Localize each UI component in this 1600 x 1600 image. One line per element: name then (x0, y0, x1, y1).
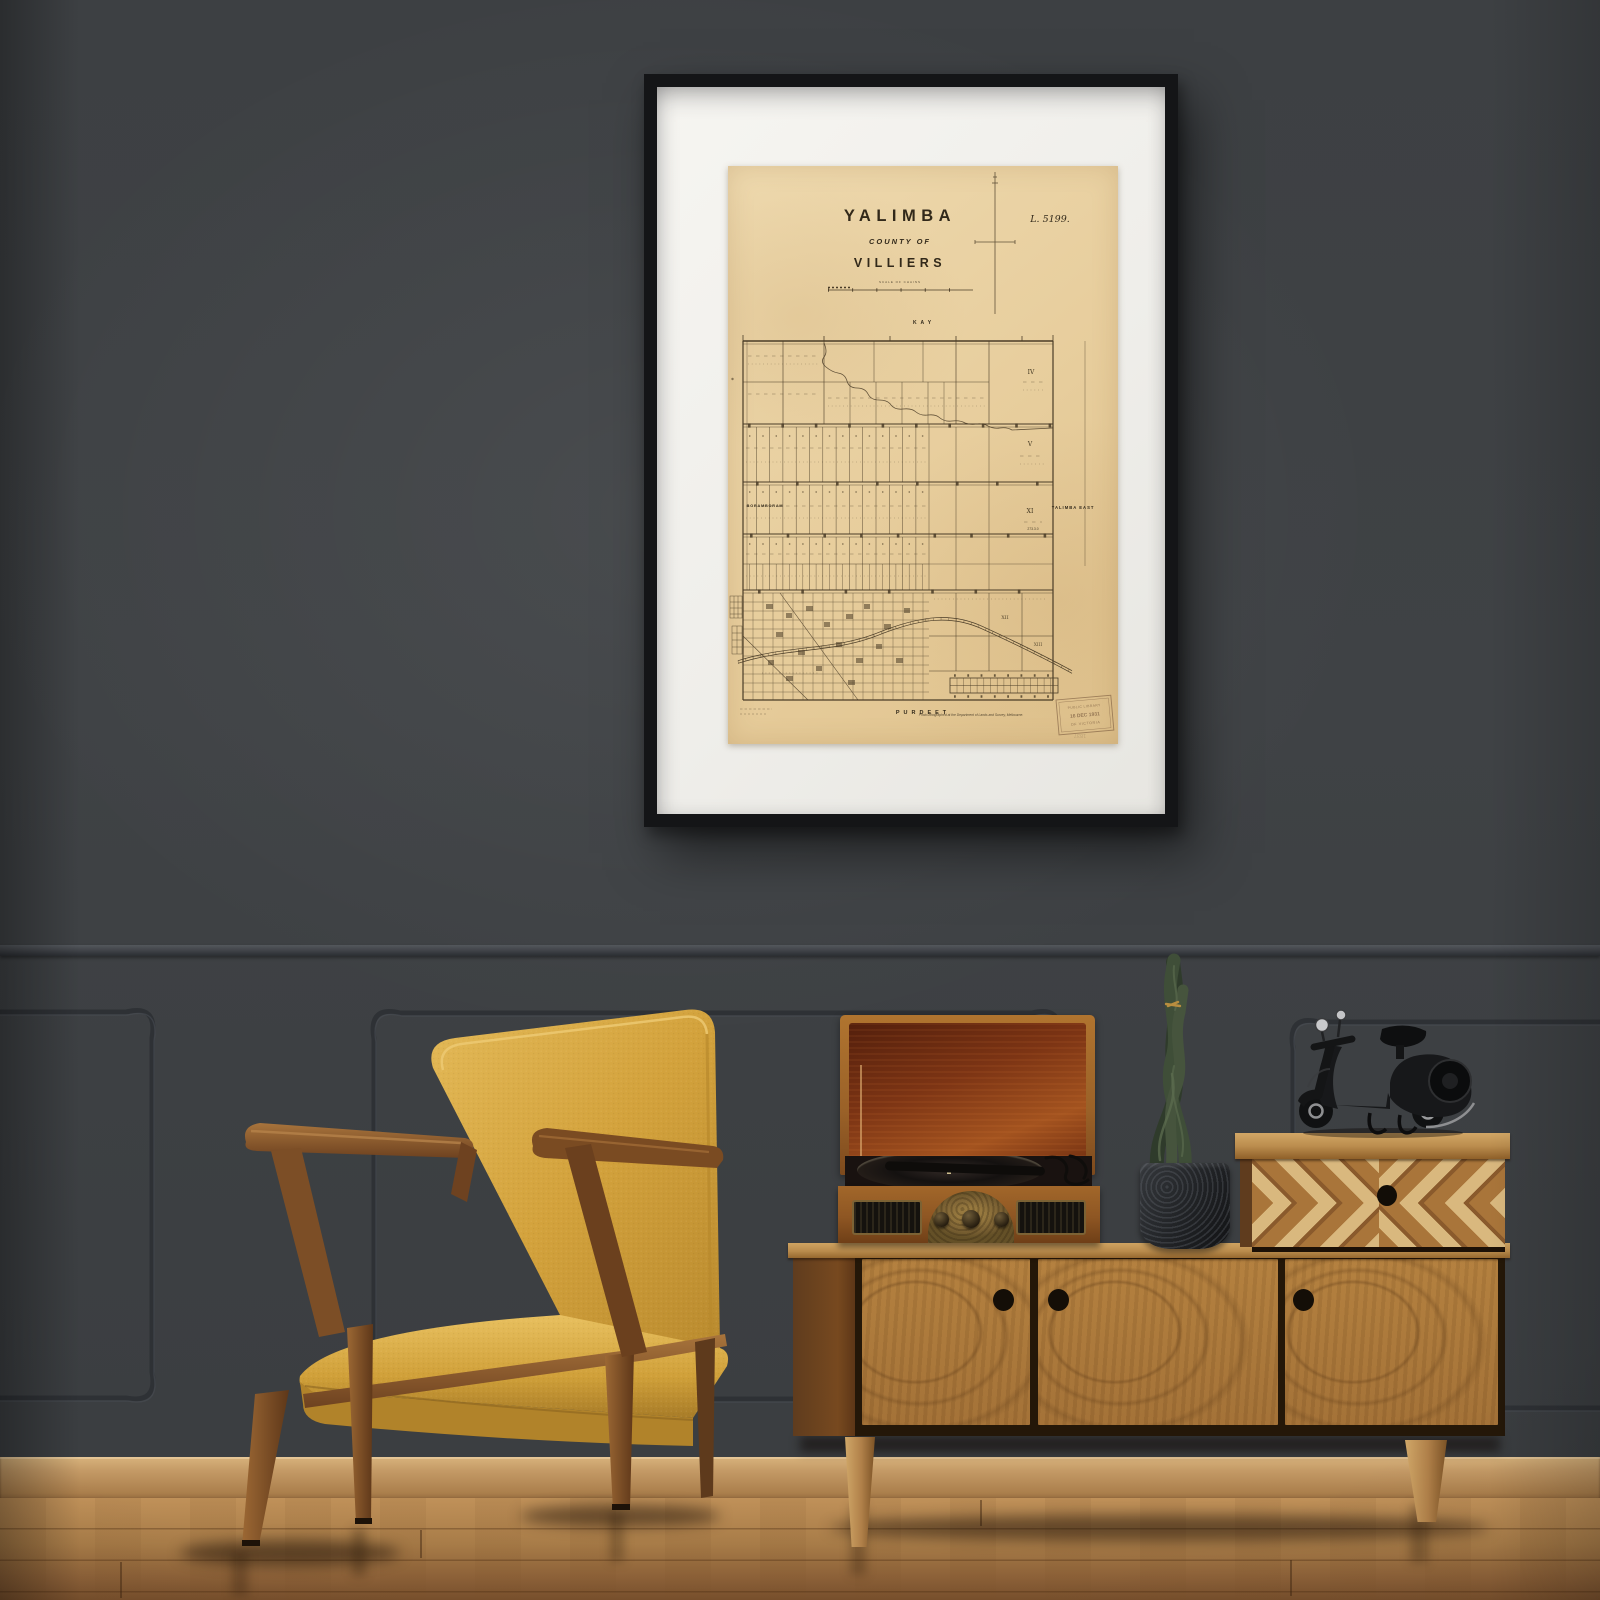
map-title-2: VILLIERS (854, 256, 946, 270)
parcel-acreage-note: 273.3.0 (1027, 527, 1038, 531)
library-stamp: PUBLIC LIBRARY 16 DEC 1931 OF VICTORIA (1056, 695, 1114, 735)
neighbor-label-west: BORAMBORAM (747, 504, 784, 508)
parish-map: YALIMBA COUNTY OF VILLIERS SCALE OF CHAI… (728, 166, 1118, 744)
drawer-unit-gap (1252, 1247, 1505, 1252)
map-plate-number: L. 5199. (1029, 214, 1070, 225)
neighbor-label-north: KAY (913, 320, 935, 326)
scooter-seat (1380, 1025, 1426, 1047)
drawer-unit-chevron-drawer (1252, 1157, 1505, 1249)
yellow-armchair (215, 990, 915, 1585)
section-numeral-xiii: XIII (1034, 642, 1043, 648)
section-numeral-v: V (1027, 441, 1033, 448)
door-finger-hole-left (993, 1289, 1014, 1311)
scooter-handlebar (1314, 1039, 1352, 1047)
chair-foot-cap (242, 1540, 260, 1546)
chair-rail-molding (0, 945, 1600, 956)
map-scale-caption: SCALE OF CHAINS (879, 280, 921, 284)
panel-highlight-left (0, 1013, 155, 1401)
neighbor-label-east: YALIMBA EAST (1052, 505, 1095, 510)
map-subtitle: COUNTY OF (869, 237, 931, 246)
record-player-cables (1040, 1148, 1096, 1192)
floor-plank-joint (1290, 1560, 1292, 1596)
creek-line (822, 343, 1053, 430)
drawer-finger-hole (1377, 1185, 1397, 1206)
braided-snake-plant (1120, 950, 1240, 1180)
chevron-inlay-bl (1252, 1203, 1379, 1249)
parcels-right-blocks (929, 593, 1053, 671)
speaker-grille-right (1016, 1200, 1086, 1235)
chair-leg-front-right (605, 1352, 634, 1510)
chair-arm-support-left (271, 1148, 345, 1337)
section-roads (743, 382, 1053, 593)
chair-leg-front-left (242, 1390, 289, 1546)
control-knob-right (994, 1212, 1009, 1227)
chair-foot-cap (612, 1504, 630, 1510)
control-knob-center (962, 1210, 980, 1228)
scooter-model (1278, 995, 1488, 1140)
parcel-text-marks (740, 356, 1048, 714)
parcels-top-band (743, 341, 989, 424)
chevron-inlay-tl (1252, 1157, 1379, 1203)
floor-plank-joint (120, 1562, 122, 1598)
road-node-ticks (748, 426, 1053, 592)
section-numeral-iv: IV (1028, 369, 1035, 376)
door-finger-hole-middle (1048, 1289, 1069, 1311)
stamp-line-2: 16 DEC 1931 (1070, 711, 1101, 720)
chair-foot-cap (355, 1518, 372, 1524)
left-margin-blocks (730, 596, 742, 654)
bottom-strip-lots (950, 676, 1058, 697)
stamp-line-1: PUBLIC LIBRARY (1067, 703, 1101, 710)
scale-bar (828, 288, 973, 291)
section-numeral-xi: XI (1027, 508, 1034, 515)
scooter-mirror-right (1336, 1010, 1346, 1020)
section-numeral-xii: XII (1001, 615, 1009, 621)
chair-leg-rear-right (695, 1338, 715, 1498)
map-title: YALIMBA (844, 207, 956, 225)
poster-mat: YALIMBA COUNTY OF VILLIERS SCALE OF CHAI… (657, 87, 1165, 814)
chevron-inlay-br (1379, 1203, 1506, 1249)
map-print-paper: YALIMBA COUNTY OF VILLIERS SCALE OF CHAI… (728, 166, 1118, 744)
parcels-small-lots (743, 424, 1053, 590)
door-finger-hole-right (1293, 1289, 1314, 1311)
sideboard-door-right (1285, 1259, 1498, 1425)
control-knob-left (934, 1212, 949, 1227)
sideboard-door-middle (1038, 1259, 1278, 1425)
poster-frame: YALIMBA COUNTY OF VILLIERS SCALE OF CHAI… (644, 74, 1178, 827)
chevron-inlay-tr (1379, 1157, 1506, 1203)
living-room-photo: YALIMBA COUNTY OF VILLIERS SCALE OF CHAI… (0, 0, 1600, 1600)
plant-pot (1140, 1163, 1230, 1249)
sideboard-floor-shadow (830, 1515, 1490, 1541)
wainscot-panel-left (0, 1010, 153, 1398)
stamp-line-3: OF VICTORIA (1071, 720, 1101, 727)
scooter-mirror-left (1316, 1019, 1329, 1032)
map-imprint: Photo-lithographed at the Department of … (919, 713, 1023, 717)
sideboard-body (855, 1256, 1505, 1436)
north-meridian (975, 172, 1015, 314)
paper-fleck (731, 378, 733, 380)
